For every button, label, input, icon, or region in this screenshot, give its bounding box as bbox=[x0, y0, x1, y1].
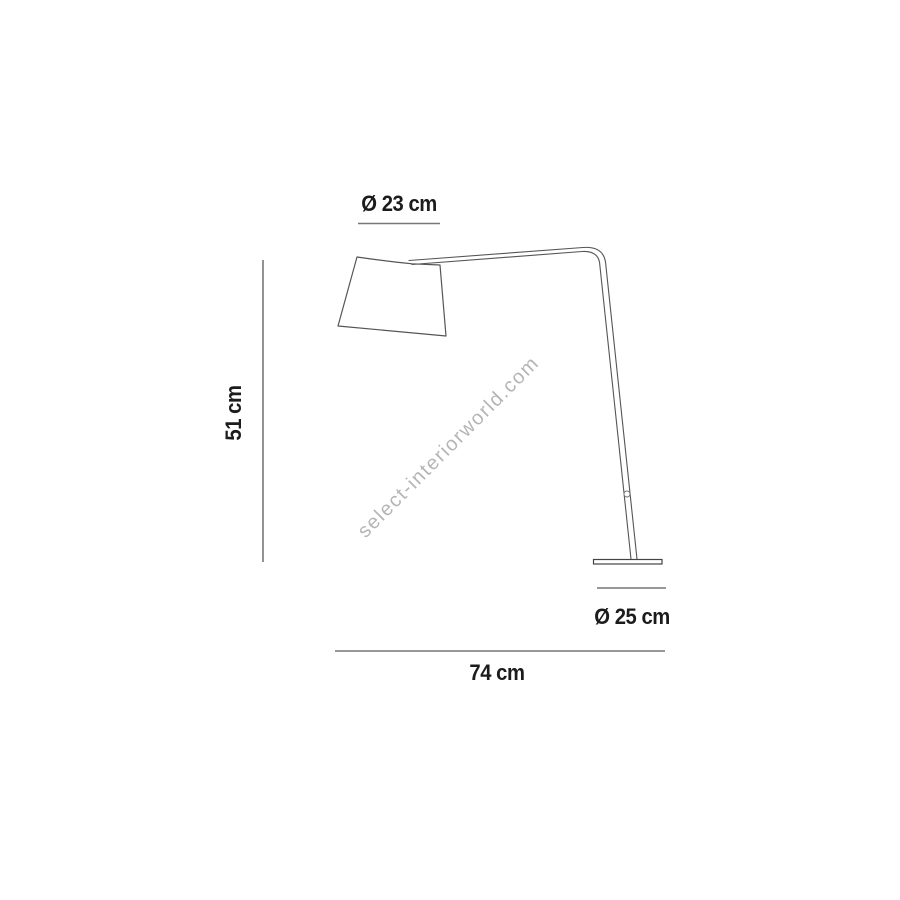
shade-outline bbox=[338, 257, 446, 336]
width-value: 74 cm bbox=[469, 660, 524, 686]
shade-diameter-label: Ø 23 cm bbox=[340, 191, 458, 217]
base-diameter-value: Ø 25 cm bbox=[594, 604, 670, 630]
pole-joint-screw bbox=[624, 491, 630, 497]
height-label: 51 cm bbox=[221, 333, 247, 493]
base-plate bbox=[594, 560, 663, 565]
base-diameter-label: Ø 25 cm bbox=[573, 604, 691, 630]
height-value: 51 cm bbox=[221, 385, 247, 440]
width-label: 74 cm bbox=[438, 660, 556, 686]
arm-inner-line bbox=[412, 251, 631, 559]
shade-diameter-value: Ø 23 cm bbox=[361, 191, 437, 217]
dimension-diagram: Ø 23 cm 51 cm Ø 25 cm 74 cm select-inter… bbox=[0, 0, 900, 900]
